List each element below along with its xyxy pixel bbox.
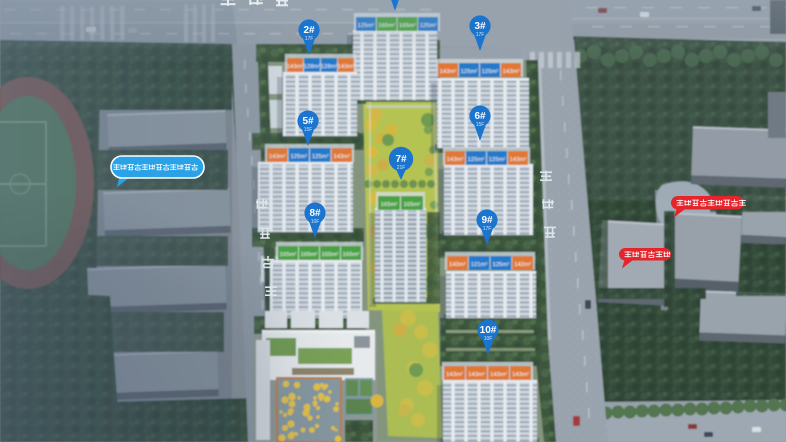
svg-text:21F: 21F bbox=[397, 165, 406, 171]
svg-text:5#: 5# bbox=[302, 116, 314, 127]
svg-text:10F: 10F bbox=[311, 219, 320, 225]
svg-text:8#: 8# bbox=[309, 208, 321, 219]
svg-text:9#: 9# bbox=[481, 215, 493, 226]
svg-text:10#: 10# bbox=[480, 325, 497, 336]
svg-text:10F: 10F bbox=[484, 336, 493, 342]
svg-text:17F: 17F bbox=[305, 36, 314, 42]
svg-text:3#: 3# bbox=[474, 21, 486, 32]
svg-text:17F: 17F bbox=[483, 226, 492, 232]
svg-text:15F: 15F bbox=[304, 127, 313, 133]
svg-text:7#: 7# bbox=[395, 154, 407, 165]
svg-text:17F: 17F bbox=[476, 32, 485, 38]
svg-text:15F: 15F bbox=[476, 122, 485, 128]
svg-text:6#: 6# bbox=[474, 111, 486, 122]
svg-text:2#: 2# bbox=[303, 25, 315, 36]
